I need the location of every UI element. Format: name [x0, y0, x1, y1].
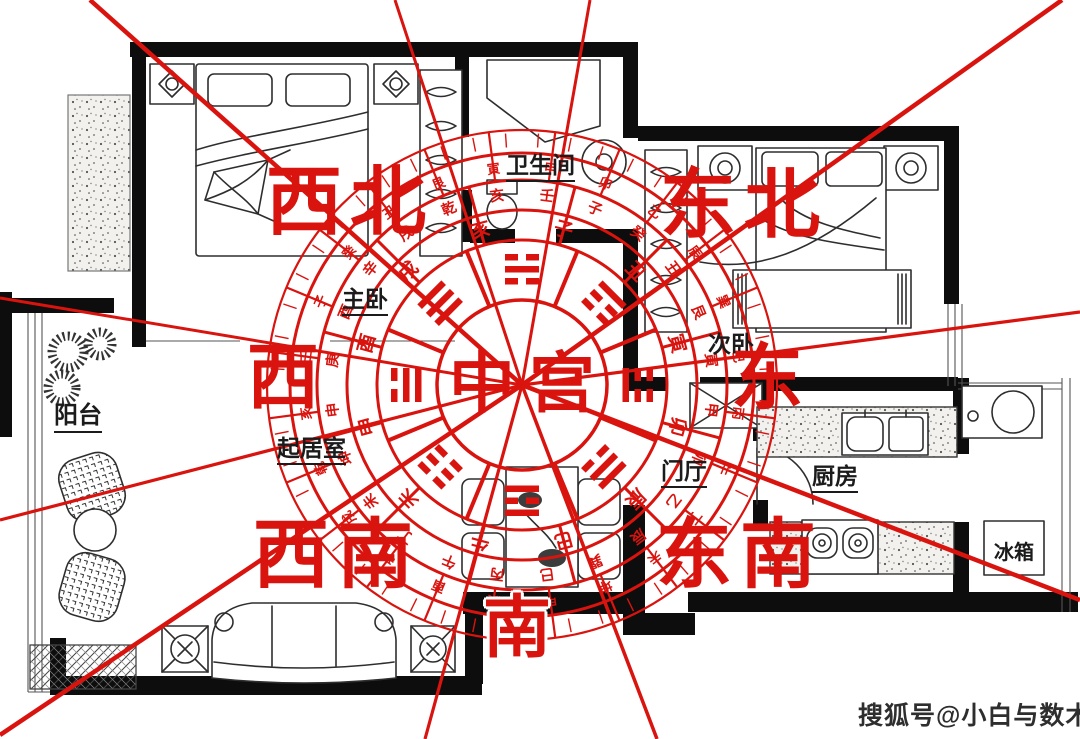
compass-ring-char-twenty-four-mountains-outer: 坤	[597, 577, 615, 596]
label-northwest: 西北	[266, 165, 434, 241]
compass-spoke	[555, 251, 578, 306]
compass-ring-char-earthly-branches: 子	[552, 218, 576, 243]
room-label-master-bedroom: 主卧	[342, 287, 388, 316]
compass-ring-char-twenty-four-mountains-outer: 寅	[486, 161, 501, 178]
compass-ring-char-twenty-four-mountains: 巳	[539, 564, 556, 583]
compass-ring-char-twenty-four-mountains: 乾	[439, 197, 460, 219]
room-label-fridge: 冰箱	[986, 536, 1042, 565]
compass-ring-char-twenty-four-mountains: 子	[585, 198, 605, 219]
compass-ring-char-twenty-four-mountains: 丑	[662, 258, 685, 280]
compass-ring-char-earthly-branches: 寅	[664, 331, 691, 355]
room-label-bathroom: 卫生间	[506, 153, 575, 182]
compass-spoke	[555, 464, 578, 519]
compass-spoke	[441, 610, 446, 623]
compass-spoke	[411, 598, 417, 611]
label-south: 南	[483, 594, 551, 662]
compass-spoke	[538, 134, 539, 148]
trigram-qian	[417, 280, 463, 326]
trigram-gen	[581, 280, 627, 326]
compass-ring-char-earthly-branches: 亥	[468, 216, 492, 243]
compass-ring-char-twenty-four-mountains: 申	[323, 402, 343, 419]
compass-ring-char-earthly-branches: 酉	[355, 332, 380, 356]
compass-spoke	[735, 490, 748, 496]
compass-ring-char-twenty-four-mountains-outer: 子	[311, 293, 330, 311]
label-southwest: 西南	[253, 518, 421, 594]
label-east: 东	[731, 343, 803, 415]
trigram-dui	[391, 368, 422, 402]
compass-ring-char-earthly-branches: 卯	[664, 415, 690, 439]
compass-ring-char-twenty-four-mountains-outer: 巽	[714, 293, 733, 311]
compass-spoke	[735, 274, 748, 280]
compass-ring-char-twenty-four-mountains: 亥	[489, 186, 506, 206]
compass-ring-char-earthly-branches: 午	[468, 527, 492, 554]
room-label-balcony: 阳台	[54, 403, 102, 433]
compass-ring-char-twenty-four-mountains: 辰	[627, 525, 649, 548]
trigram-kan	[505, 254, 539, 285]
watermark: 搜狐号@小白与数术	[858, 696, 1080, 732]
fengshui-floorplan: 子丑寅卯辰巳午未申酉戌亥壬子癸丑艮寅甲卯乙辰巽巳丙午丁未坤申庚酉辛戌乾亥甲卯乙辰…	[0, 0, 1080, 739]
compass-spoke	[506, 134, 507, 148]
compass-ring-char-earthly-branches: 申	[353, 415, 380, 439]
compass-ring-char-twenty-four-mountains: 午	[438, 550, 459, 572]
compass-spoke	[388, 418, 443, 441]
compass-ring-char-twenty-four-mountains: 丙	[489, 564, 506, 583]
compass-spoke	[473, 618, 476, 632]
label-southeast: 东南	[656, 518, 824, 594]
room-label-kitchen: 厨房	[812, 464, 858, 493]
compass-spoke	[568, 138, 571, 152]
sector-line	[522, 0, 590, 385]
compass-spoke	[275, 431, 289, 434]
compass-ring-char-twenty-four-mountains-outer: 酉	[430, 577, 448, 596]
compass-spoke	[599, 146, 604, 159]
compass-ring-char-twenty-four-mountains: 癸	[626, 221, 650, 245]
compass-spoke	[599, 610, 604, 623]
compass-spoke	[747, 304, 760, 309]
compass-ring-char-twenty-four-mountains: 艮	[687, 302, 708, 322]
trigram-li	[505, 486, 539, 517]
compass-spoke	[601, 418, 656, 441]
label-west: 西	[247, 342, 319, 414]
compass-spoke	[296, 274, 309, 280]
compass-spoke	[296, 490, 309, 496]
compass-ring-char-twenty-four-mountains-outer: 卯	[597, 174, 615, 193]
label-northeast: 东北	[660, 168, 828, 244]
trigram-xun	[581, 444, 627, 490]
room-label-entry-hall: 门厅	[661, 459, 707, 488]
compass-ring-char-twenty-four-mountains: 壬	[539, 187, 556, 206]
compass-spoke	[473, 138, 476, 152]
label-center-palace: 中宫	[449, 350, 609, 416]
compass-ring-char-twenty-four-mountains: 庚	[323, 351, 343, 368]
compass-spoke	[747, 462, 760, 467]
compass-spoke	[388, 330, 443, 353]
compass-ring-char-twenty-four-mountains: 甲	[701, 402, 720, 419]
trigram-zhen	[623, 368, 654, 402]
compass-spoke	[627, 159, 633, 172]
compass-spoke	[568, 618, 571, 632]
compass-ring-char-twenty-four-mountains: 乙	[662, 490, 684, 511]
compass-spoke	[312, 245, 324, 253]
compass-ring-char-earthly-branches: 巳	[552, 527, 576, 552]
room-label-living-room: 起居室	[277, 436, 346, 465]
compass-spoke	[627, 598, 633, 611]
compass-spoke	[283, 304, 296, 309]
compass-spoke	[755, 431, 769, 434]
compass-ring-char-twenty-four-mountains: 辛	[359, 257, 382, 279]
